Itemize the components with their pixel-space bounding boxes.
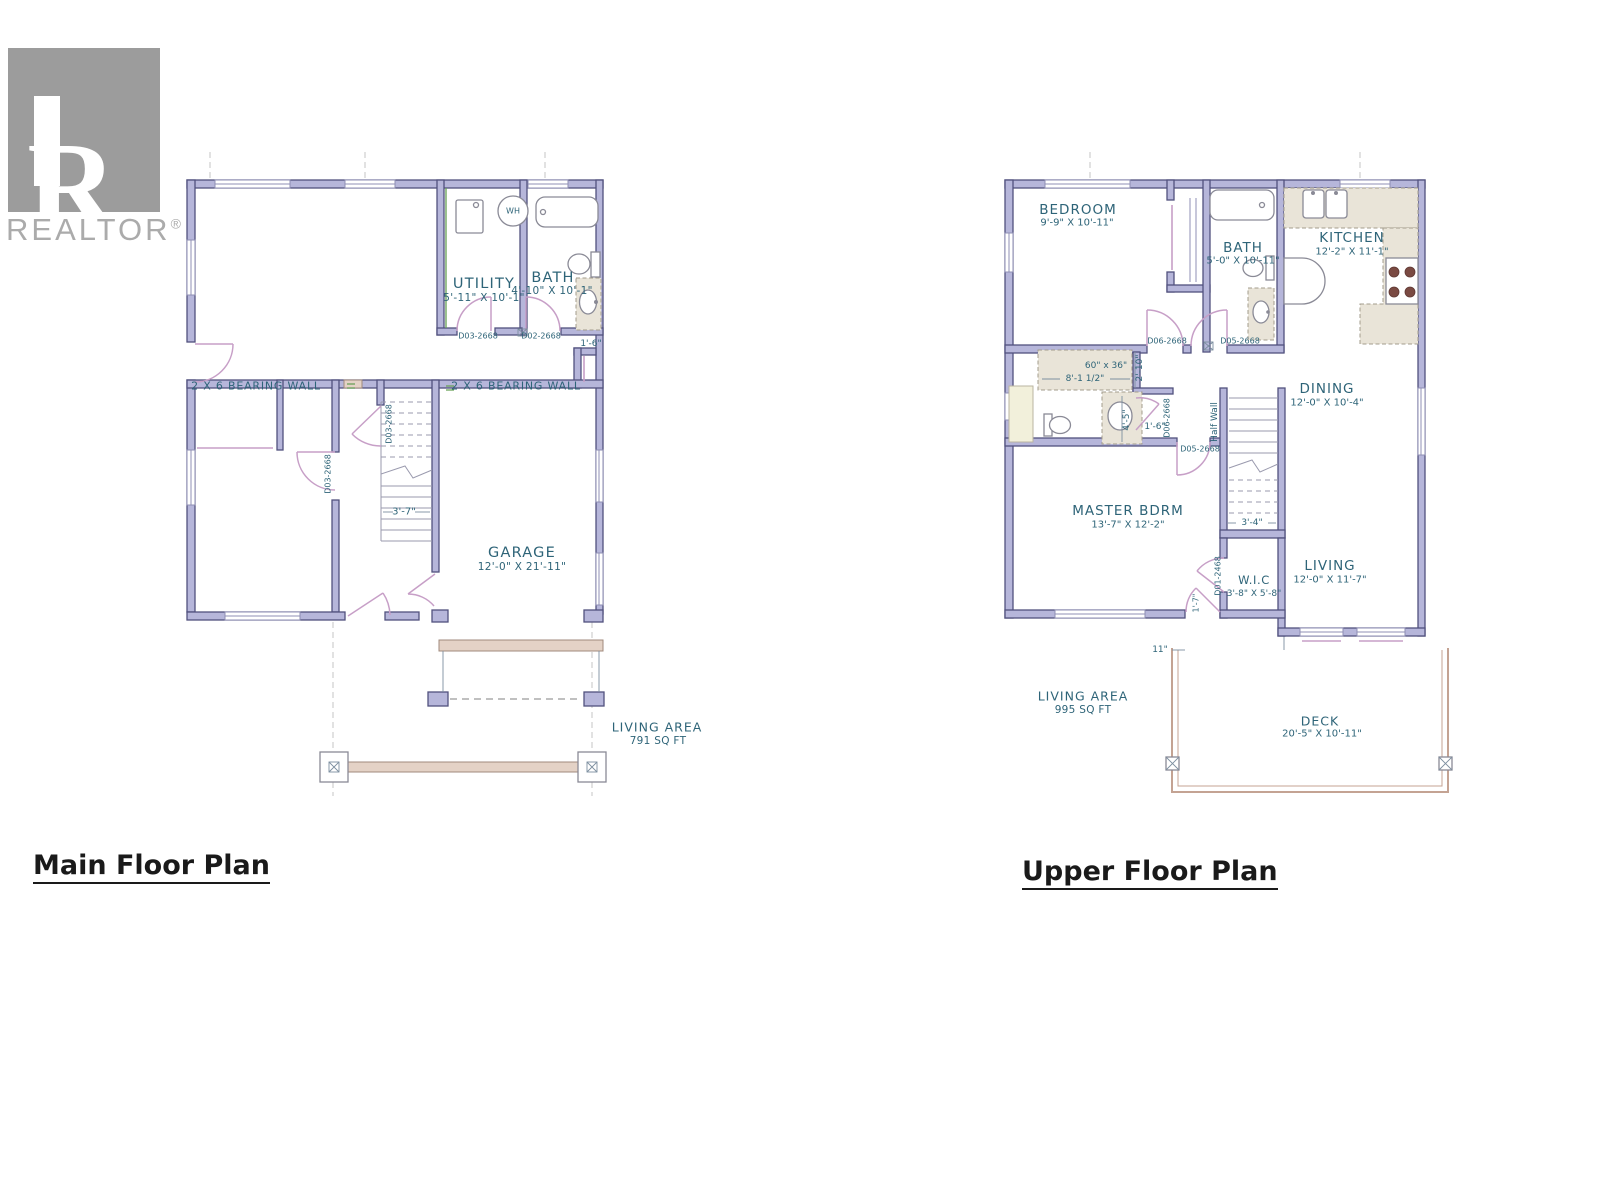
closet-shelving [1172, 198, 1196, 282]
kitchen-label: KITCHEN [1319, 230, 1385, 246]
door-tag: D05-2668 [1180, 445, 1220, 454]
bath-dims: 5'-0" X 10'-11" [1206, 256, 1279, 267]
toilet-bowl [1050, 417, 1071, 434]
bath-label: BATH [1223, 240, 1263, 256]
dim-note: 2'-10" [1135, 354, 1145, 381]
dim-note: 1'-7" [1192, 594, 1201, 613]
plan-canvas: UTILITY 5'-11" X 10'-1" BATH 4'-10" X 10… [0, 0, 1600, 1200]
upper-floor-plan: BEDROOM 9'-9" X 10'-11" BATH 5'-0" X 10'… [1005, 152, 1452, 792]
door-tag: D06-2668 [1163, 398, 1172, 438]
dim-note: 3'-7" [392, 507, 416, 518]
kitchen-dims: 12'-2" X 11'-1" [1315, 247, 1388, 258]
wic-dims: 3'-8" X 5'-8" [1227, 589, 1282, 599]
walls [187, 180, 604, 706]
bedroom-dims: 9'-9" X 10'-11" [1040, 218, 1113, 229]
dining-label: DINING [1299, 381, 1354, 397]
dim-note: 11" [1152, 645, 1168, 655]
door-tag: D06-2668 [1147, 337, 1187, 346]
bearing-wall-note: 2 X 6 BEARING WALL [451, 380, 581, 393]
utility-label: UTILITY [453, 276, 515, 292]
door-tag: D03-2668 [458, 332, 498, 341]
dim-note: 8'-1 1/2" [1066, 374, 1105, 384]
dining-dims: 12'-0" X 10'-4" [1290, 398, 1363, 409]
porch [320, 752, 606, 782]
half-wall-note: Half Wall [1210, 402, 1220, 442]
dim-note: 4'-5" [1122, 409, 1132, 430]
door-tag: D01-2468 [1214, 556, 1223, 596]
main-floor-plan: UTILITY 5'-11" X 10'-1" BATH 4'-10" X 10… [187, 152, 702, 796]
living-dims: 12'-0" X 11'-7" [1293, 575, 1366, 586]
tub-size-note: 60" x 36" [1085, 361, 1127, 371]
bearing-wall-note: 2 X 6 BEARING WALL [191, 380, 321, 393]
garage-dims: 12'-0" X 21'-11" [478, 561, 566, 573]
washer [456, 200, 483, 233]
living-area-label: LIVING AREA [1038, 689, 1129, 704]
bath-dims: 4'-10" X 10'-1" [511, 285, 592, 297]
master-label: MASTER BDRM [1072, 503, 1184, 519]
kitchen-counters [1284, 188, 1418, 344]
bedroom-label: BEDROOM [1039, 202, 1116, 218]
living-label: LIVING [1304, 558, 1355, 574]
living-area-value: 995 SQ FT [1055, 704, 1112, 716]
door-tag: D05-2668 [1220, 337, 1260, 346]
living-area-label: LIVING AREA [612, 720, 703, 735]
deck-label: DECK [1301, 714, 1339, 729]
kitchen-table [1284, 258, 1325, 304]
garage-front [439, 640, 603, 699]
deck-dims: 20'-5" X 10'-11" [1282, 729, 1362, 740]
water-heater-label: WH [506, 207, 520, 216]
floor-plan-sheet: R REALTOR® Main Floor Plan Upper Floor P… [0, 0, 1600, 1200]
wic-label: W.I.C [1238, 573, 1270, 587]
garage-label: GARAGE [488, 545, 556, 561]
living-area-value: 791 SQ FT [630, 735, 687, 747]
bath-label: BATH [531, 270, 574, 286]
labels-upper: BEDROOM 9'-9" X 10'-11" BATH 5'-0" X 10'… [1038, 202, 1389, 740]
dim-note: 1'-6" [580, 339, 601, 349]
dim-note: 3'-4" [1241, 518, 1262, 528]
stove [1386, 258, 1418, 304]
master-dims: 13'-7" X 12'-2" [1091, 520, 1164, 531]
door-tag: D02-2668 [521, 332, 561, 341]
door-tag: D03-2668 [385, 404, 394, 444]
door-tag: D03-2668 [324, 454, 333, 494]
bathtub [536, 197, 598, 227]
stairs-upper [1228, 398, 1278, 523]
labels-main: UTILITY 5'-11" X 10'-1" BATH 4'-10" X 10… [191, 207, 702, 748]
